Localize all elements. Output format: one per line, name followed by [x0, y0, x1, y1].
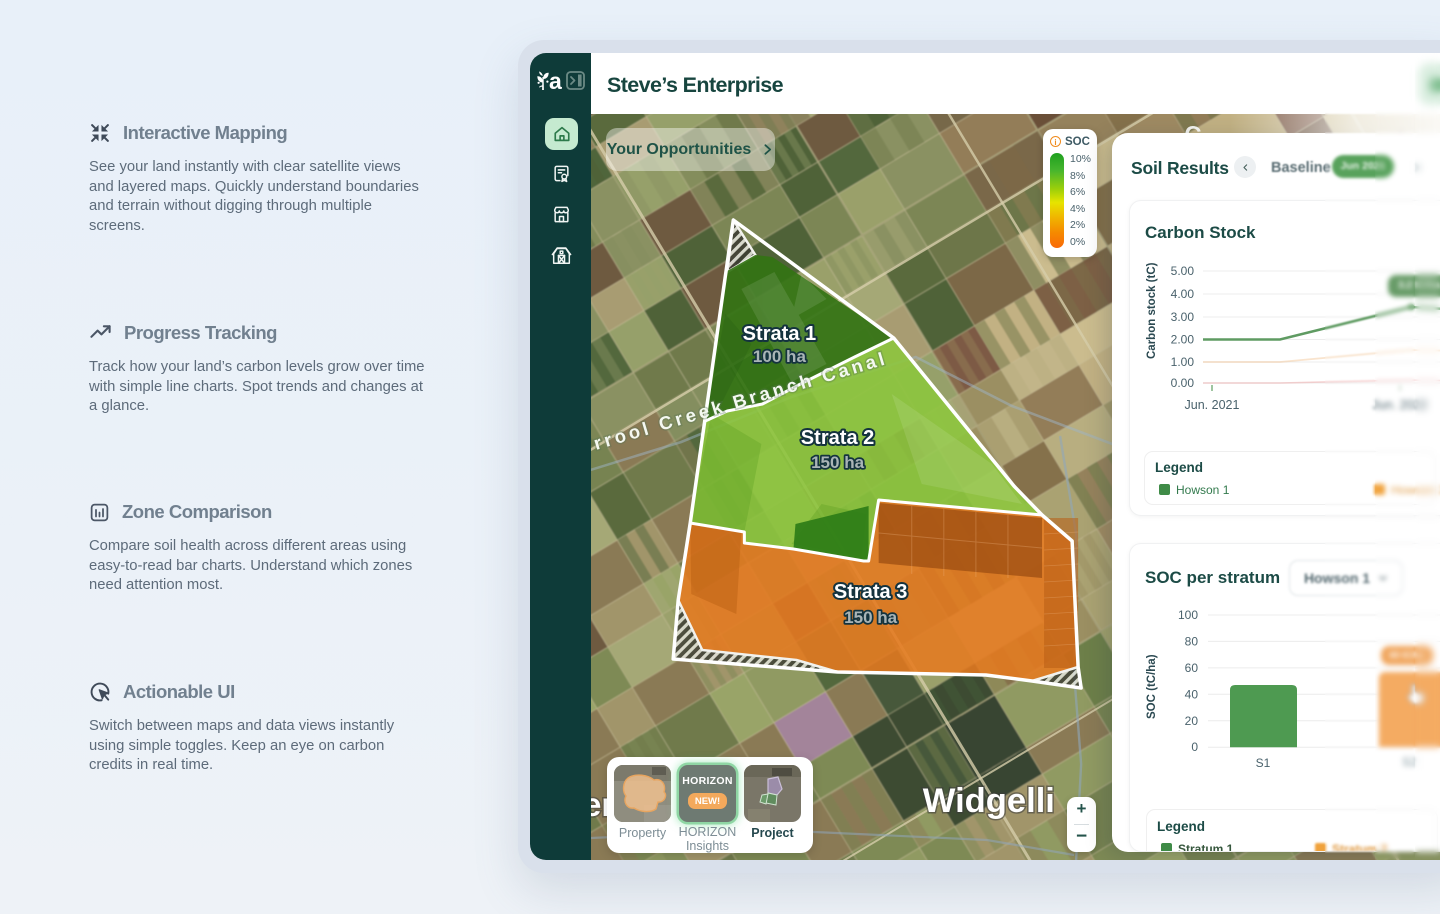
- svg-text:Widgelli: Widgelli: [923, 782, 1055, 820]
- svg-text:150 ha: 150 ha: [811, 453, 865, 472]
- svg-text:4.00: 4.00: [1171, 287, 1195, 301]
- svg-text:20: 20: [1185, 714, 1199, 728]
- svg-text:100 ha: 100 ha: [753, 347, 807, 366]
- svg-text:1.00: 1.00: [1171, 355, 1195, 369]
- svg-text:100: 100: [1178, 608, 1198, 622]
- svg-text:Jun. 2021: Jun. 2021: [1185, 398, 1240, 412]
- svg-text:0.00: 0.00: [1171, 376, 1195, 390]
- svg-text:60: 60: [1185, 661, 1199, 675]
- svg-text:150 ha: 150 ha: [844, 608, 898, 627]
- svg-text:2.00: 2.00: [1171, 333, 1195, 347]
- svg-text:S1: S1: [1256, 756, 1271, 770]
- svg-text:Strata 2: Strata 2: [801, 427, 875, 449]
- svg-text:Strata 3: Strata 3: [834, 581, 908, 603]
- svg-text:a: a: [549, 69, 562, 93]
- svg-text:5.00: 5.00: [1171, 264, 1195, 278]
- svg-text:3.00: 3.00: [1171, 310, 1195, 324]
- svg-text:0: 0: [1191, 740, 1198, 754]
- svg-text:40: 40: [1185, 687, 1199, 701]
- svg-text:Jun. 2022: Jun. 2022: [1373, 398, 1428, 412]
- svg-text:Strata 1: Strata 1: [743, 323, 817, 345]
- svg-text:SOC (tC/ha): SOC (tC/ha): [1146, 654, 1158, 719]
- svg-text:80: 80: [1185, 634, 1199, 648]
- svg-text:Carbon stock (tC): Carbon stock (tC): [1146, 262, 1158, 359]
